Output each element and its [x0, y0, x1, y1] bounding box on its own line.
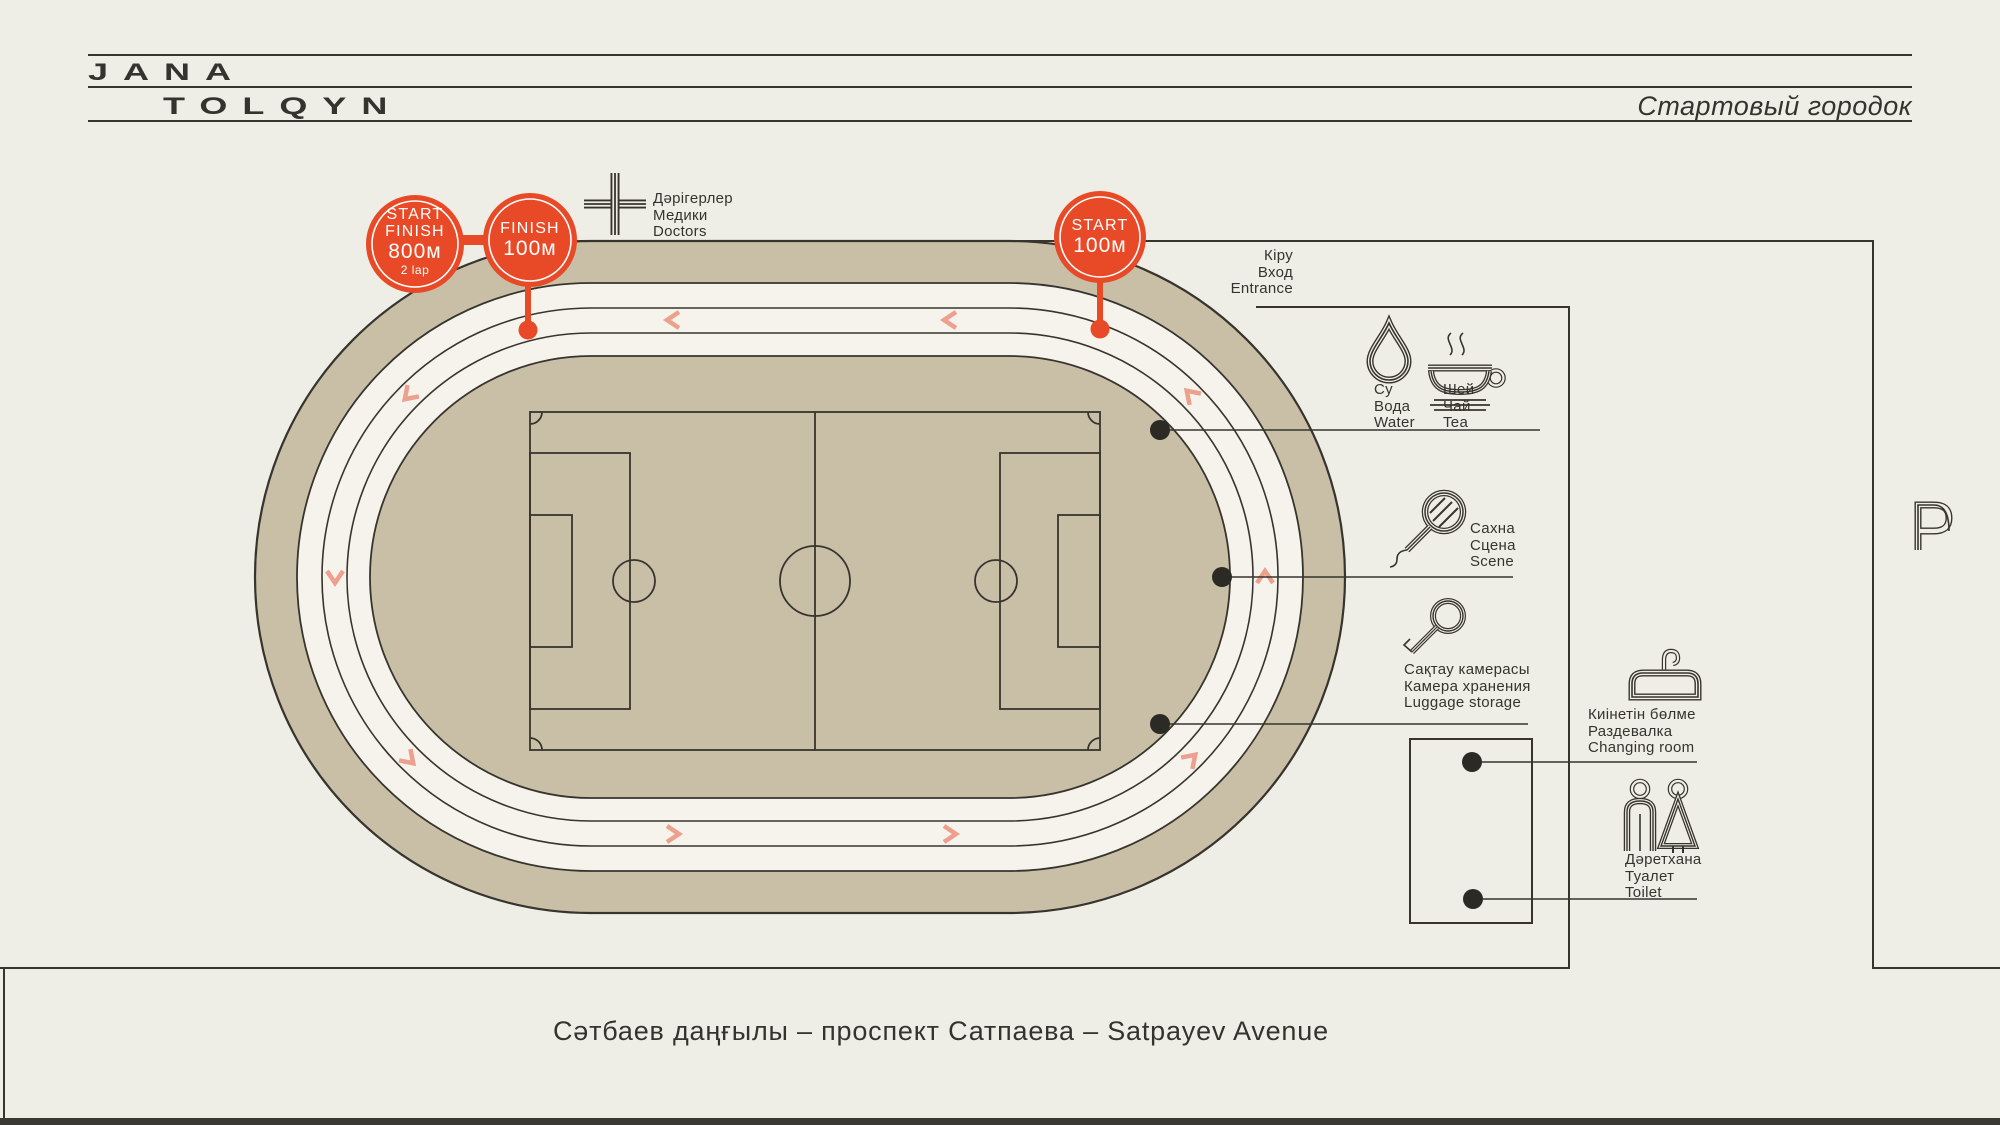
badge-text-line: FINISH	[355, 223, 475, 240]
badge-text-line: 100м	[1040, 234, 1160, 257]
man-woman-icon	[1627, 781, 1695, 853]
badge-text-line: 800м	[355, 240, 475, 263]
label-line: Дәрігерлер	[653, 191, 733, 208]
stadium-map-graphic	[0, 0, 2000, 1125]
badge-text-line: START	[355, 206, 475, 223]
label-line: Tea	[1443, 415, 1474, 432]
label-entrance: Кіру Вход Entrance	[1231, 248, 1293, 298]
label-changing-room: Киінетін бөлме Раздевалка Changing room	[1588, 707, 1696, 757]
label-line: Changing room	[1588, 740, 1696, 757]
label-line: Вход	[1231, 265, 1293, 282]
label-line: Вода	[1374, 399, 1415, 416]
label-line: Киінетін бөлме	[1588, 707, 1696, 724]
label-line: Water	[1374, 415, 1415, 432]
start-pin-dot	[1091, 320, 1110, 339]
dot-water-tea	[1150, 420, 1170, 440]
infield	[370, 356, 1230, 798]
label-line: Дәретхана	[1625, 852, 1702, 869]
badge-text-line: 100м	[470, 237, 590, 260]
label-line: Су	[1374, 382, 1415, 399]
avenue-bar	[0, 1118, 2000, 1125]
dot-changing	[1462, 752, 1482, 772]
label-line: Туалет	[1625, 869, 1702, 886]
street-name: Сәтбаев даңғылы – проспект Сатпаева – Sa…	[553, 1016, 1313, 1047]
running-track	[255, 241, 1345, 913]
finish-100-label: FINISH 100м	[470, 220, 590, 260]
microphone-icon	[1390, 493, 1463, 567]
label-line: Медики	[653, 208, 733, 225]
label-line: Сақтау камерасы	[1404, 662, 1531, 679]
label-toilet: Дәретхана Туалет Toilet	[1625, 852, 1702, 902]
badge-text-line: 2 lap	[355, 263, 475, 277]
label-tea: Шей Чай Tea	[1443, 382, 1474, 432]
dot-luggage	[1150, 714, 1170, 734]
label-doctors: Дәрігерлер Медики Doctors	[653, 191, 733, 241]
brand-line-2: TOLQYN	[163, 93, 402, 121]
finish-pin-dot	[519, 321, 538, 340]
water-drop-icon	[1370, 323, 1408, 380]
label-line: Doctors	[653, 224, 733, 241]
start-100-label: START 100м	[1040, 217, 1160, 257]
label-line: Сахна	[1470, 521, 1516, 538]
start-finish-800-label: START FINISH 800м 2 lap	[355, 206, 475, 277]
label-line: Шей	[1443, 382, 1474, 399]
label-luggage: Сақтау камерасы Камера хранения Luggage …	[1404, 662, 1531, 712]
label-line: Камера хранения	[1404, 679, 1531, 696]
dot-toilet	[1463, 889, 1483, 909]
label-line: Кіру	[1231, 248, 1293, 265]
hanger-icon	[1632, 651, 1698, 697]
label-scene: Сахна Сцена Scene	[1470, 521, 1516, 571]
label-line: Раздевалка	[1588, 724, 1696, 741]
medical-cross-icon	[584, 173, 646, 235]
label-line: Scene	[1470, 554, 1516, 571]
key-icon	[1404, 601, 1463, 652]
brand-line-1: JANA	[88, 59, 246, 87]
label-line: Сцена	[1470, 538, 1516, 555]
label-line: Toilet	[1625, 885, 1702, 902]
parking-icon	[1918, 505, 1949, 550]
stadium-map-poster: JANA TOLQYN Стартовый городок START FINI…	[0, 0, 2000, 1125]
page-title: Стартовый городок	[1637, 91, 1912, 122]
label-line: Luggage storage	[1404, 695, 1531, 712]
badge-text-line: FINISH	[470, 220, 590, 237]
badge-text-line: START	[1040, 217, 1160, 234]
label-water: Су Вода Water	[1374, 382, 1415, 432]
dot-scene	[1212, 567, 1232, 587]
label-line: Чай	[1443, 399, 1474, 416]
label-line: Entrance	[1231, 281, 1293, 298]
